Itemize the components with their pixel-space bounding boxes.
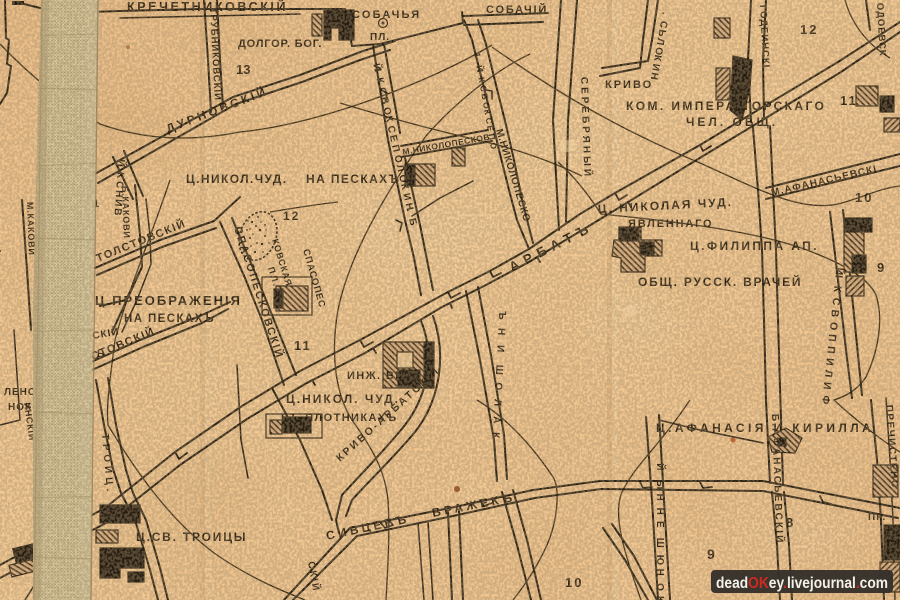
svg-text:deadOKey.livejournal.com: deadOKey.livejournal.com xyxy=(716,575,888,592)
